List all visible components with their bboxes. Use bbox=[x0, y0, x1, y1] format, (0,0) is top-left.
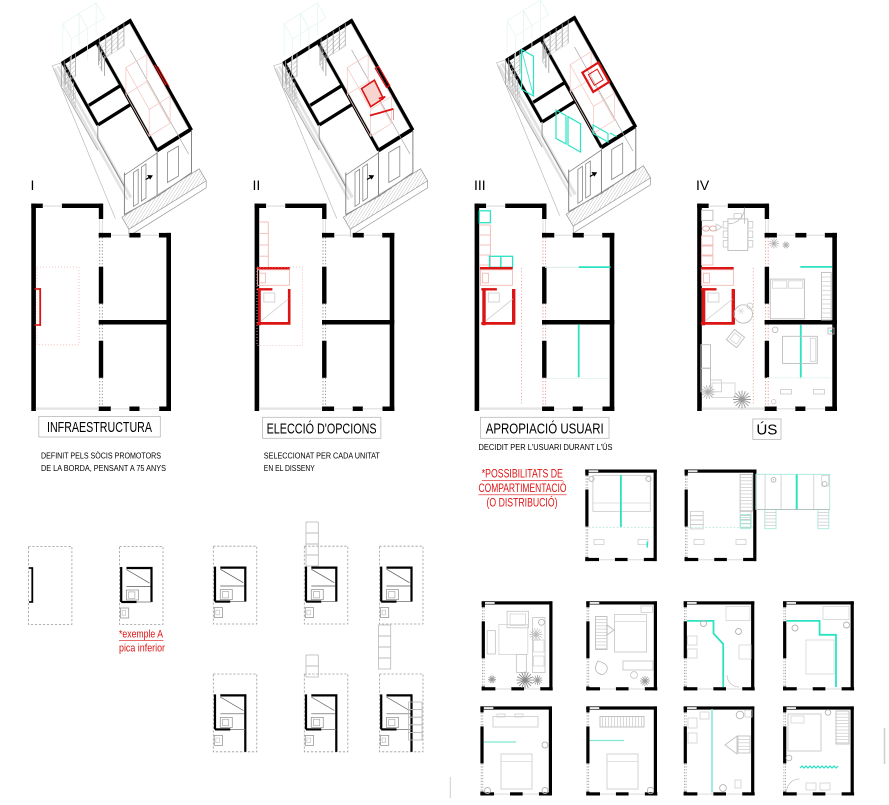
svg-text:*POSSIBILITATS DE: *POSSIBILITATS DE bbox=[482, 469, 563, 481]
svg-text:INFRAESTRUCTURA: INFRAESTRUCTURA bbox=[47, 419, 153, 436]
svg-text:(O DISTRIBUCIÓ): (O DISTRIBUCIÓ) bbox=[487, 497, 558, 510]
svg-text:I: I bbox=[31, 177, 35, 193]
svg-text:*exemple A: *exemple A bbox=[119, 629, 164, 641]
svg-text:IV: IV bbox=[696, 177, 710, 193]
svg-text:ELECCIÓ D'OPCIONS: ELECCIÓ D'OPCIONS bbox=[267, 420, 377, 437]
svg-text:SELECCIONAT PER CADA UNITAT: SELECCIONAT PER CADA UNITAT bbox=[264, 450, 381, 460]
svg-text:II: II bbox=[253, 177, 261, 193]
svg-text:EN EL DISSENY: EN EL DISSENY bbox=[264, 463, 315, 473]
svg-text:DECIDIT PER L'USUARI DURANT L': DECIDIT PER L'USUARI DURANT L'ÚS bbox=[479, 442, 613, 452]
svg-text:DE LA BORDA, PENSANT A 75 ANYS: DE LA BORDA, PENSANT A 75 ANYS bbox=[41, 463, 166, 473]
svg-text:ÚS: ÚS bbox=[756, 422, 777, 439]
svg-text:DEFINIT PELS SÒCIS PROMOTORS: DEFINIT PELS SÒCIS PROMOTORS bbox=[41, 450, 161, 460]
svg-text:III: III bbox=[474, 177, 486, 193]
svg-text:pica inferior: pica inferior bbox=[119, 643, 165, 655]
svg-text:COMPARTIMENTACIÓ: COMPARTIMENTACIÓ bbox=[479, 482, 567, 495]
svg-text:APROPIACIÓ USUARI: APROPIACIÓ USUARI bbox=[486, 420, 604, 437]
